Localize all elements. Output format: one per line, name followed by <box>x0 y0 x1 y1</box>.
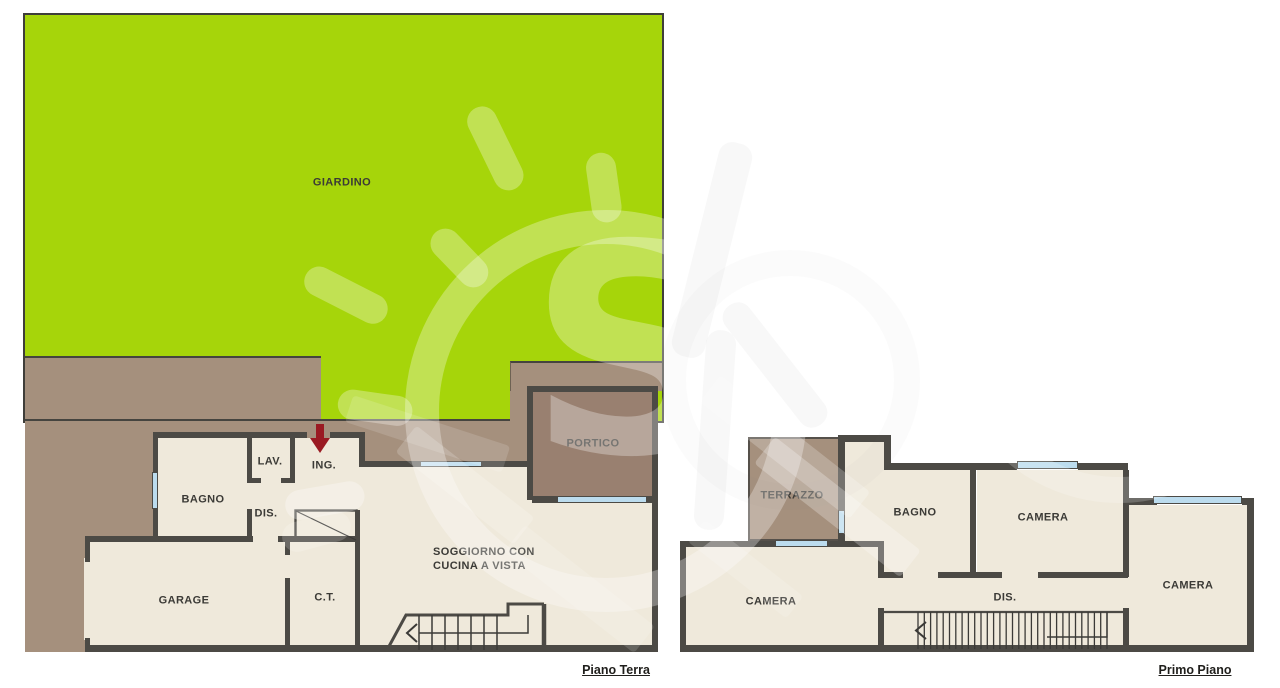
stairs-direction-chevron-icon <box>407 624 417 642</box>
floor-label-piano-terra: Piano Terra <box>582 663 650 677</box>
courtyard-paving <box>25 438 85 652</box>
window <box>557 496 647 503</box>
room-label-giardino: GIARDINO <box>313 178 371 189</box>
window <box>1017 461 1078 469</box>
garage-door-threshold <box>84 558 91 640</box>
room-label-terrazzo: TERRAZZO <box>760 491 823 502</box>
room-camera-right <box>1128 505 1247 646</box>
room-bagno-first <box>890 470 972 578</box>
room-label-lav: LAV. <box>258 457 283 468</box>
room-camera-top <box>977 470 1123 578</box>
room-label-camera-top: CAMERA <box>1018 513 1069 524</box>
entrance-arrow-icon <box>309 424 331 454</box>
understairs-closet <box>294 509 358 542</box>
room-label-ct: C.T. <box>314 593 335 604</box>
floor-label-primo-piano: Primo Piano <box>1159 663 1232 677</box>
courtyard-paving <box>85 438 153 543</box>
room-label-camera-left: CAMERA <box>746 597 797 608</box>
courtyard-paving <box>360 438 510 462</box>
window <box>838 510 845 534</box>
paving-strip <box>25 356 321 421</box>
room-label-dis-first: DIS. <box>994 593 1017 604</box>
window <box>420 461 482 467</box>
room-label-portico: PORTICO <box>567 439 620 450</box>
stairs-ground <box>384 597 550 652</box>
room-label-camera-right: CAMERA <box>1163 581 1214 592</box>
stairs-first <box>884 609 1130 652</box>
window <box>152 472 158 509</box>
window <box>775 540 828 547</box>
floorplan-canvas: GIARDINO PORTICO LAV. ING. BAGNO DIS. GA… <box>0 0 1280 688</box>
window <box>1153 496 1242 504</box>
room-label-bagno-first: BAGNO <box>894 508 937 519</box>
room-label-dis: DIS. <box>255 509 278 520</box>
room-label-ing: ING. <box>312 461 336 472</box>
room-label-garage: GARAGE <box>159 596 210 607</box>
room-label-bagno: BAGNO <box>182 495 225 506</box>
room-label-soggiorno: SOGGIORNO CON CUCINA A VISTA <box>433 546 535 573</box>
